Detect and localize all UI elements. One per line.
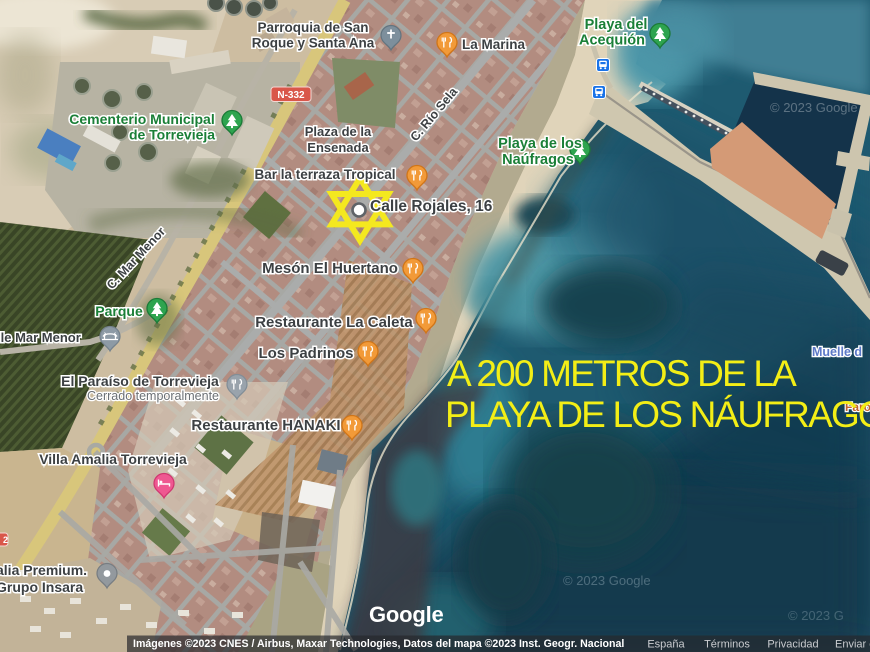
svg-text:Restaurante La Caleta: Restaurante La Caleta [255, 314, 413, 331]
svg-text:© 2023 Google: © 2023 Google [563, 573, 651, 588]
svg-text:2: 2 [3, 535, 8, 545]
svg-text:Parroquia de San: Parroquia de San [257, 20, 368, 35]
svg-text:Parque: Parque [95, 303, 143, 319]
svg-text:Playa de los: Playa de los [498, 136, 582, 152]
svg-text:Los Padrinos: Los Padrinos [258, 345, 353, 362]
svg-text:Google: Google [369, 602, 444, 627]
svg-text:El Paraíso de Torrevieja: El Paraíso de Torrevieja [61, 373, 219, 389]
svg-text:© 2023 Google: © 2023 Google [770, 100, 858, 115]
svg-text:Roque y Santa Ana: Roque y Santa Ana [252, 36, 375, 51]
svg-text:PLAYA DE LOS NÁUFRAGOS: PLAYA DE LOS NÁUFRAGOS [445, 394, 870, 435]
svg-text:Grupo Insara: Grupo Insara [0, 579, 83, 595]
svg-text:Privacidad: Privacidad [767, 639, 818, 651]
svg-text:Bar la terraza Tropical: Bar la terraza Tropical [254, 167, 395, 182]
svg-text:Naúfragos: Naúfragos [502, 152, 574, 168]
svg-text:A 200 METROS DE LA: A 200 METROS DE LA [447, 353, 797, 394]
svg-text:Acequión: Acequión [579, 33, 645, 49]
svg-text:Muelle d: Muelle d [812, 345, 862, 359]
svg-text:Mesón El Huertano: Mesón El Huertano [262, 260, 398, 277]
svg-text:Restaurante HANAKI: Restaurante HANAKI [191, 417, 340, 434]
svg-text:Enviar c: Enviar c [835, 639, 870, 651]
svg-text:N-332: N-332 [277, 90, 305, 101]
svg-text:Términos: Términos [704, 639, 750, 651]
svg-text:Plaza de la: Plaza de la [305, 124, 372, 139]
svg-text:Ensenada: Ensenada [307, 140, 369, 155]
svg-text:de Torrevieja: de Torrevieja [129, 127, 215, 143]
svg-text:La Marina: La Marina [462, 37, 526, 52]
svg-text:Cerrado temporalmente: Cerrado temporalmente [87, 389, 219, 403]
svg-text:Villa Amalia Torrevieja: Villa Amalia Torrevieja [39, 451, 187, 467]
svg-text:Cementerio Municipal: Cementerio Municipal [69, 111, 214, 127]
svg-text:alia Premium.: alia Premium. [0, 562, 87, 578]
svg-text:Imágenes ©2023 CNES / Airbus,: Imágenes ©2023 CNES / Airbus, Maxar Tech… [133, 638, 624, 650]
svg-text:lle Mar Menor: lle Mar Menor [0, 330, 81, 345]
svg-text:© 2023 G: © 2023 G [788, 608, 844, 623]
svg-text:España: España [647, 639, 685, 651]
svg-text:Calle Rojales, 16: Calle Rojales, 16 [370, 198, 493, 215]
svg-text:Playa del: Playa del [585, 17, 648, 33]
